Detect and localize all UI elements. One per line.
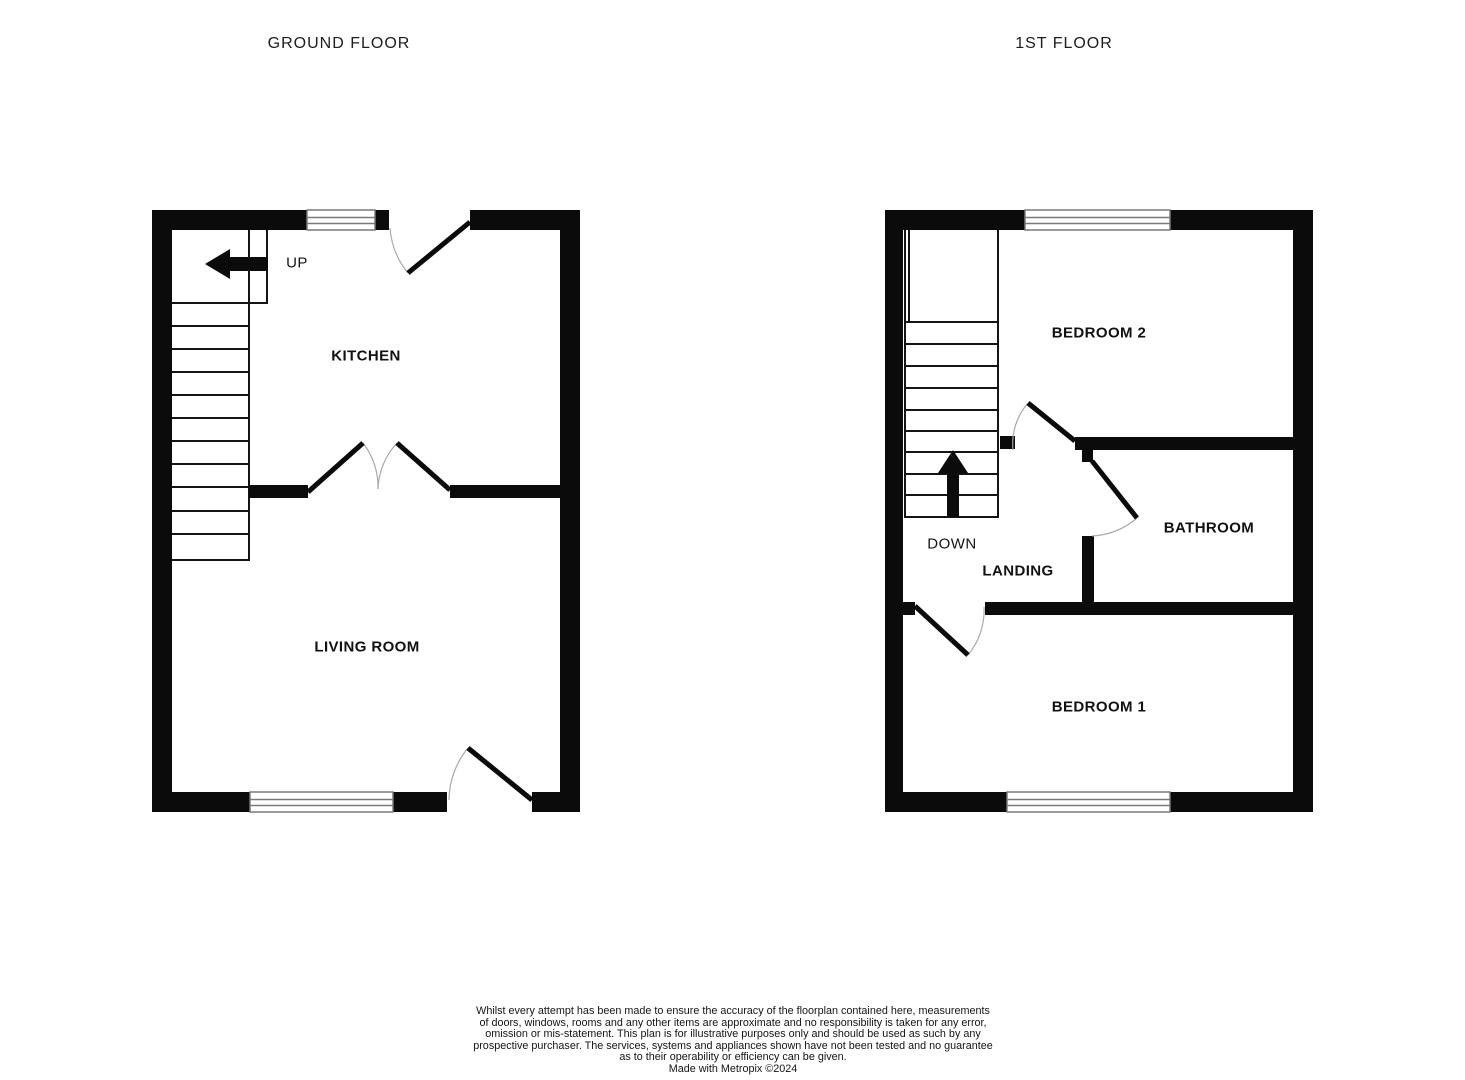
first-floor-window bbox=[1007, 792, 1170, 812]
ground-floor-door-leaf bbox=[468, 748, 532, 800]
first-floor-wall bbox=[903, 602, 915, 615]
first-floor-door-leaf bbox=[1028, 403, 1075, 441]
first-floor-wall bbox=[885, 792, 1007, 812]
first-floor-wall bbox=[885, 210, 1025, 230]
disclaimer-line: as to their operability or efficiency ca… bbox=[473, 1052, 993, 1064]
room-label-bedroom-1: BEDROOM 1 bbox=[1052, 699, 1146, 716]
disclaimer-line: omission or mis-statement. This plan is … bbox=[473, 1029, 993, 1041]
room-label-kitchen: KITCHEN bbox=[331, 348, 400, 365]
ground-floor-window bbox=[307, 210, 375, 230]
first-floor-door-leaf bbox=[915, 606, 968, 655]
ground-floor-door-leaf bbox=[408, 222, 470, 273]
ground-floor-title: GROUND FLOOR bbox=[268, 35, 411, 53]
room-label-bathroom: BATHROOM bbox=[1164, 520, 1254, 537]
ground-floor-wall bbox=[393, 792, 447, 812]
first-floor-wall bbox=[1170, 210, 1313, 230]
first-floor-wall bbox=[1075, 437, 1293, 450]
first-floor-door-swing-arc bbox=[1092, 518, 1137, 536]
first-floor-wall bbox=[1293, 210, 1313, 812]
stairs-down-label: DOWN bbox=[927, 536, 977, 553]
ground-floor-wall bbox=[152, 210, 172, 812]
ground-floor-door-swing-arc bbox=[449, 748, 468, 800]
ground-floor-wall bbox=[450, 485, 560, 498]
first-floor-wall bbox=[1170, 792, 1313, 812]
room-label-bedroom-2: BEDROOM 2 bbox=[1052, 325, 1146, 342]
ground-floor-wall bbox=[152, 792, 250, 812]
ground-floor-wall bbox=[532, 792, 580, 812]
ground-floor-door-leaf bbox=[308, 443, 363, 492]
ground-floor-window bbox=[250, 792, 393, 812]
disclaimer: Whilst every attempt has been made to en… bbox=[473, 1006, 993, 1075]
ground-floor-wall bbox=[375, 210, 389, 230]
first-floor-door-leaf bbox=[1092, 461, 1137, 518]
first-floor-wall bbox=[885, 210, 903, 812]
room-label-landing: LANDING bbox=[982, 563, 1053, 580]
ground-floor-door-leaf bbox=[397, 443, 450, 490]
ground-floor-wall bbox=[152, 210, 307, 230]
stairs-up-label: UP bbox=[286, 255, 308, 272]
ground-floor-wall bbox=[560, 210, 580, 812]
first-floor-title: 1ST FLOOR bbox=[1015, 35, 1113, 53]
room-label-living-room: LIVING ROOM bbox=[314, 639, 419, 656]
first-floor-window bbox=[1025, 210, 1170, 230]
floorplan-canvas bbox=[0, 0, 1465, 1080]
ground-floor-door-swing-arc bbox=[390, 228, 408, 273]
first-floor-wall bbox=[1082, 450, 1093, 462]
ground-floor-door-swing-arc bbox=[378, 443, 397, 489]
credit-line: Made with Metropix ©2024 bbox=[473, 1064, 993, 1076]
ground-floor-wall bbox=[249, 485, 308, 498]
first-floor-door-swing-arc bbox=[968, 607, 984, 655]
first-floor-wall bbox=[985, 602, 1293, 615]
floorplan-page: GROUND FLOOR 1ST FLOOR UP KITCHEN LIVING… bbox=[0, 0, 1465, 1080]
ground-floor-door-swing-arc bbox=[363, 443, 378, 489]
disclaimer-line: Whilst every attempt has been made to en… bbox=[473, 1006, 993, 1018]
